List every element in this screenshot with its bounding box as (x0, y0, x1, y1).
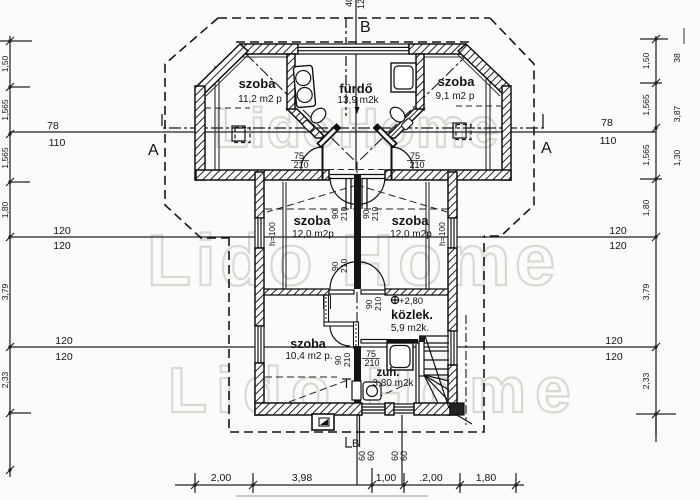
svg-text:210: 210 (342, 353, 352, 367)
svg-text:3,80 m2k: 3,80 m2k (372, 378, 414, 389)
svg-text:1,565: 1,565 (0, 99, 10, 121)
svg-text:120: 120 (356, 0, 366, 9)
svg-text:120: 120 (605, 335, 623, 347)
svg-text:13,9 m2k: 13,9 m2k (337, 95, 379, 106)
svg-text:1,80: 1,80 (476, 472, 497, 484)
svg-text:40: 40 (344, 0, 354, 7)
svg-text:9,1 m2 p: 9,1 m2 p (436, 91, 475, 102)
svg-text:h=100: h=100 (437, 222, 447, 246)
svg-text:120: 120 (53, 225, 71, 237)
svg-text:110: 110 (600, 135, 617, 147)
svg-text:3,87: 3,87 (672, 105, 682, 122)
svg-text:1,30: 1,30 (672, 149, 682, 166)
svg-text:38: 38 (672, 53, 682, 63)
svg-text:210: 210 (370, 207, 380, 221)
svg-text:210: 210 (409, 160, 424, 170)
svg-text:1,565: 1,565 (641, 94, 651, 116)
svg-text:1,80: 1,80 (0, 201, 10, 218)
svg-text:3,79: 3,79 (641, 283, 651, 300)
svg-text:210: 210 (339, 259, 349, 273)
svg-text:3,79: 3,79 (0, 283, 10, 300)
svg-text:120: 120 (605, 351, 623, 363)
svg-text:szoba: szoba (392, 213, 430, 228)
svg-text:210: 210 (373, 297, 383, 311)
svg-text:szoba: szoba (294, 213, 332, 228)
svg-text:210: 210 (339, 207, 349, 221)
svg-text:120: 120 (609, 240, 627, 252)
svg-text:120: 120 (55, 335, 73, 347)
svg-text:szoba: szoba (438, 74, 476, 89)
svg-text:közlek.: közlek. (391, 308, 433, 322)
svg-text:210: 210 (293, 160, 308, 170)
svg-text:78: 78 (601, 117, 613, 129)
svg-text:2,33: 2,33 (641, 372, 651, 389)
svg-text:3,98: 3,98 (292, 472, 313, 484)
svg-text:12,0 m2p: 12,0 m2p (292, 229, 334, 240)
svg-text:1,565: 1,565 (0, 147, 10, 169)
svg-text:5,9 m2k.: 5,9 m2k. (391, 323, 429, 334)
svg-text:2,00: 2,00 (211, 472, 232, 484)
svg-text:12,0 m2p: 12,0 m2p (390, 229, 432, 240)
svg-text:1,80: 1,80 (641, 199, 651, 216)
svg-text:szoba: szoba (290, 337, 326, 351)
svg-text:fürdő: fürdő (339, 81, 372, 96)
svg-text:78: 78 (47, 120, 59, 132)
svg-text:+2,80: +2,80 (399, 296, 423, 307)
svg-text:110: 110 (49, 137, 66, 149)
svg-text:1,50: 1,50 (641, 52, 651, 69)
svg-text:1,565: 1,565 (641, 144, 651, 166)
svg-text:11,2 m2 p: 11,2 m2 p (238, 94, 282, 105)
svg-text:A: A (148, 142, 159, 159)
svg-text:60: 60 (399, 451, 409, 461)
svg-text:1,50: 1,50 (0, 55, 10, 72)
svg-text:60: 60 (366, 451, 376, 461)
svg-text:2,33: 2,33 (0, 371, 10, 388)
svg-text:szoba: szoba (239, 76, 277, 91)
svg-text:A: A (541, 140, 552, 157)
svg-text:120: 120 (609, 225, 627, 237)
svg-text:Lido Home: Lido Home (147, 221, 560, 301)
svg-text:B: B (360, 19, 371, 36)
svg-text:10,4 m2 p.: 10,4 m2 p. (285, 351, 332, 362)
svg-text:h=100: h=100 (267, 222, 277, 246)
svg-text:.2,00: .2,00 (419, 472, 443, 484)
svg-text:B: B (352, 438, 359, 450)
svg-text:1,00: 1,00 (376, 472, 397, 484)
svg-text:120: 120 (55, 351, 73, 363)
svg-text:120: 120 (53, 240, 71, 252)
